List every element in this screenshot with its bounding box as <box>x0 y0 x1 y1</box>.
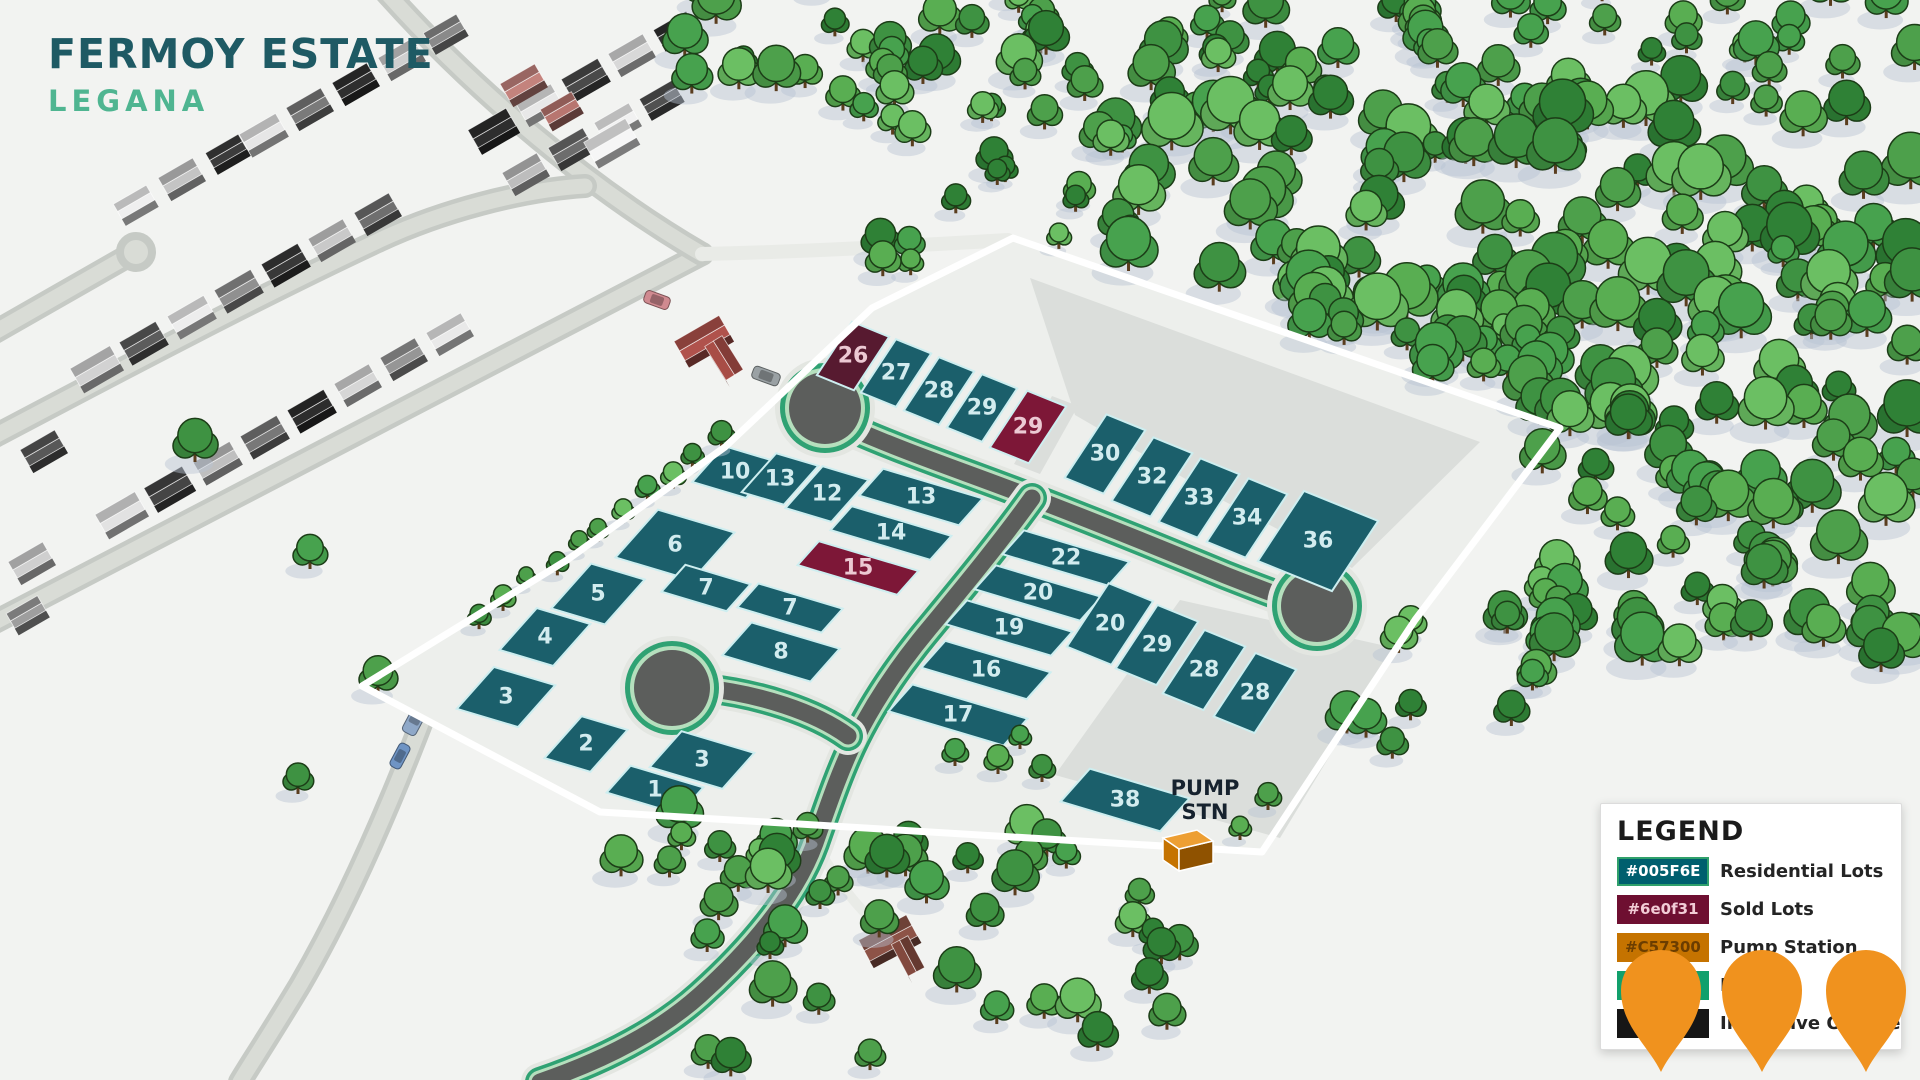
house <box>332 63 380 106</box>
tree <box>737 848 792 905</box>
legend-row-4: Indicative Outline <box>1617 1008 1901 1038</box>
pump-label-line1: PUMP <box>1171 776 1240 800</box>
tree-canopy <box>1621 612 1664 655</box>
lot-number: 17 <box>943 703 974 728</box>
tree-canopy <box>1864 628 1899 663</box>
tree-canopy <box>1049 223 1068 242</box>
tree-canopy <box>1417 345 1448 376</box>
tree-shadow <box>683 947 718 961</box>
lot-number: 22 <box>1051 546 1082 571</box>
legend-row-0: #005F6EResidential Lots <box>1617 856 1901 886</box>
tree-canopy <box>984 991 1009 1016</box>
tree-canopy <box>1422 29 1452 59</box>
tree-canopy <box>1535 613 1573 651</box>
tree <box>1388 690 1426 729</box>
lot-number: 20 <box>1095 612 1126 637</box>
tree-canopy <box>1735 600 1767 632</box>
house <box>380 338 428 381</box>
house <box>705 336 743 388</box>
tree-canopy <box>1495 601 1520 626</box>
tree-canopy <box>1663 624 1696 657</box>
tree-canopy <box>178 418 212 452</box>
lot-number: 13 <box>906 485 937 510</box>
tree-canopy <box>1610 394 1646 430</box>
tree-canopy <box>1031 984 1058 1011</box>
tree-canopy <box>297 534 324 561</box>
tree <box>973 991 1014 1033</box>
tree-shadow <box>799 905 830 918</box>
tree <box>1883 24 1920 82</box>
tree-canopy <box>1506 200 1534 228</box>
tree-shadow <box>945 869 977 882</box>
tree-canopy <box>1518 14 1544 40</box>
tree-canopy <box>1778 24 1801 47</box>
tree-canopy <box>1194 138 1232 176</box>
tree <box>1186 243 1246 306</box>
tree-canopy <box>853 93 874 114</box>
tree-canopy <box>1685 572 1710 597</box>
tree-canopy <box>1313 75 1347 109</box>
tree-shadow <box>1709 99 1744 113</box>
lot-number: 28 <box>1189 658 1220 683</box>
tree-shadow <box>793 0 830 6</box>
tree-canopy <box>760 932 780 952</box>
tree-canopy <box>1060 978 1095 1013</box>
tree-shadow <box>978 181 1005 192</box>
tree-shadow <box>1460 376 1496 391</box>
tree-canopy <box>671 822 692 843</box>
tree-canopy <box>939 947 975 983</box>
tree-shadow <box>843 117 873 129</box>
tree-shadow <box>1369 754 1403 768</box>
vehicle <box>751 365 782 387</box>
tree-canopy <box>1031 95 1058 122</box>
tree-canopy <box>987 745 1009 767</box>
tree <box>793 0 835 6</box>
legend-title: LEGEND <box>1617 816 1901 847</box>
legend-swatch-1: #6e0f31 <box>1617 895 1709 924</box>
tree-canopy <box>1815 299 1846 330</box>
tree-canopy <box>901 249 920 268</box>
tree-canopy <box>1582 448 1609 475</box>
lot-number: 38 <box>1110 788 1141 813</box>
lot-number: 32 <box>1137 465 1168 490</box>
tree-shadow <box>1045 864 1075 876</box>
tree-canopy <box>1153 993 1181 1021</box>
tree-shadow <box>934 209 965 222</box>
culdesac-asphalt <box>634 650 710 726</box>
tree-canopy <box>1029 11 1064 46</box>
site-plan-page: 2627282929303233343610131213141567785432… <box>0 0 1920 1080</box>
tree-canopy <box>1293 299 1327 333</box>
tree-canopy <box>1865 472 1908 515</box>
lot-number: 30 <box>1090 442 1121 467</box>
tree-canopy <box>1148 92 1195 139</box>
tree-canopy <box>1686 334 1718 366</box>
vehicle <box>643 289 672 310</box>
tree-canopy <box>1675 23 1698 46</box>
tree-canopy <box>1032 755 1052 775</box>
house <box>113 185 158 226</box>
tree-shadow <box>1248 806 1277 818</box>
tree-shadow <box>848 1065 881 1078</box>
tree-canopy <box>1771 236 1795 260</box>
house <box>20 430 68 473</box>
tree-canopy <box>827 866 849 888</box>
tree <box>1709 71 1749 113</box>
tree-canopy <box>1641 38 1662 59</box>
tree-canopy <box>1461 180 1504 223</box>
tree <box>1650 526 1689 567</box>
path <box>702 240 1008 254</box>
tree-canopy <box>1540 79 1586 125</box>
tree-canopy <box>658 846 682 870</box>
legend-swatch-0: #005F6E <box>1617 857 1709 886</box>
tree-canopy <box>1654 100 1694 140</box>
lot-number: 19 <box>994 616 1025 641</box>
tree-shadow <box>460 626 485 636</box>
tree-canopy <box>1852 562 1889 599</box>
tree-canopy <box>708 831 732 855</box>
tree <box>276 763 314 803</box>
tree-canopy <box>923 0 956 26</box>
lot-number: 5 <box>590 582 605 607</box>
tree-canopy <box>1469 84 1504 119</box>
tree-canopy <box>898 227 921 250</box>
tree-canopy <box>1600 168 1634 202</box>
tree <box>1687 382 1738 435</box>
tree-canopy <box>1849 291 1886 328</box>
tree-canopy <box>824 8 845 29</box>
tree-canopy <box>1331 311 1357 337</box>
tree-shadow <box>276 789 309 803</box>
tree-canopy <box>910 861 944 895</box>
tree-canopy <box>1785 91 1821 127</box>
lot-number: 29 <box>1142 633 1173 658</box>
lot-number: 14 <box>876 521 907 546</box>
tree-canopy <box>1013 58 1036 81</box>
tree-canopy <box>1610 532 1646 568</box>
tree-canopy <box>1746 544 1781 579</box>
legend-label-3: Roads <box>1720 975 1782 996</box>
house <box>8 542 56 585</box>
tree-canopy <box>605 835 638 868</box>
tree <box>1703 0 1746 24</box>
tree <box>1730 377 1794 444</box>
tree-canopy <box>1892 325 1920 356</box>
house <box>426 313 474 356</box>
tree-canopy <box>758 45 794 81</box>
lot-number: 36 <box>1303 529 1334 554</box>
tree-canopy <box>870 834 904 868</box>
tree-canopy <box>1807 604 1840 637</box>
tree-canopy <box>945 184 967 206</box>
tree-canopy <box>956 843 979 866</box>
tree-canopy <box>1521 659 1544 682</box>
tree-canopy <box>1593 4 1617 28</box>
legend-row-2: #C57300Pump Station <box>1617 932 1901 962</box>
tree-canopy <box>1147 928 1175 956</box>
tree <box>1674 334 1724 386</box>
tree <box>960 92 998 132</box>
lot-number: 20 <box>1023 581 1054 606</box>
legend-swatch-2: #C57300 <box>1617 933 1709 962</box>
lot-number: 13 <box>765 467 796 492</box>
legend-row-3: Roads <box>1617 970 1901 1000</box>
tree-canopy <box>1605 497 1630 522</box>
tree-shadow <box>1022 778 1051 790</box>
tree-canopy <box>1753 478 1793 518</box>
tree <box>1582 4 1621 44</box>
tree-canopy <box>1754 85 1778 109</box>
house <box>286 88 334 131</box>
tree-canopy <box>1133 45 1169 81</box>
tree-canopy <box>711 421 732 442</box>
tree <box>592 835 643 888</box>
lot-number: 27 <box>881 361 912 386</box>
lot-number: 15 <box>843 556 874 581</box>
tree-canopy <box>1071 66 1098 93</box>
tree-canopy <box>1194 5 1220 31</box>
tree-shadow <box>1582 31 1615 45</box>
tree-canopy <box>1455 118 1493 156</box>
legend-label-2: Pump Station <box>1720 937 1858 958</box>
lot-number: 12 <box>812 482 843 507</box>
house <box>334 364 382 407</box>
tree <box>1597 532 1653 590</box>
tree-canopy <box>1720 71 1745 96</box>
tree <box>1831 151 1889 212</box>
tree <box>683 919 724 961</box>
tree-canopy <box>1343 237 1375 269</box>
tree <box>165 418 218 474</box>
tree-canopy <box>1830 45 1856 71</box>
tree-canopy <box>988 159 1007 178</box>
tree-canopy <box>1380 727 1404 751</box>
tree-shadow <box>1743 112 1777 126</box>
tree <box>1857 0 1908 29</box>
legend-panel: LEGEND #005F6EResidential Lots#6e0f31Sol… <box>1600 803 1902 1050</box>
tree-canopy <box>1829 80 1864 115</box>
tree-canopy <box>704 883 733 912</box>
tree-shadow <box>1650 553 1684 567</box>
tree-canopy <box>1119 165 1159 205</box>
tree-shadow <box>935 762 964 774</box>
tree-canopy <box>858 1039 881 1062</box>
tree <box>285 534 328 578</box>
tree-canopy <box>1482 45 1514 77</box>
tree <box>1020 95 1063 139</box>
tree-canopy <box>1097 120 1125 148</box>
tree-shadow <box>973 1019 1009 1034</box>
legend-label-4: Indicative Outline <box>1720 1013 1900 1034</box>
lot-number: 3 <box>498 685 513 710</box>
tree <box>1561 476 1607 524</box>
tree-canopy <box>638 475 657 494</box>
tree-canopy <box>683 443 701 461</box>
tree-canopy <box>1231 816 1248 833</box>
tree-canopy <box>723 48 755 80</box>
tree-canopy <box>869 241 896 268</box>
tree-canopy <box>997 850 1033 886</box>
tree-canopy <box>676 54 707 85</box>
house <box>287 389 337 433</box>
lot-number: 28 <box>1240 681 1271 706</box>
lot-number: 7 <box>782 596 797 621</box>
tree-canopy <box>1136 958 1164 986</box>
lot-number: 7 <box>698 576 713 601</box>
tree-canopy <box>1589 220 1628 259</box>
legend-row-1: #6e0f31Sold Lots <box>1617 894 1901 924</box>
tree-canopy <box>1354 273 1400 319</box>
lot-number: 4 <box>537 625 552 650</box>
tree-canopy <box>1128 878 1150 900</box>
lot-number: 34 <box>1232 506 1263 531</box>
tree-canopy <box>716 1037 746 1067</box>
tree-canopy <box>1322 28 1353 59</box>
tree-canopy <box>1700 382 1733 415</box>
tree-canopy <box>1843 437 1877 471</box>
tree-canopy <box>667 14 702 49</box>
tree-canopy <box>1399 690 1422 713</box>
lot-number: 26 <box>838 344 869 369</box>
tree-canopy <box>1756 52 1782 78</box>
tree-canopy <box>1744 377 1786 419</box>
tree-canopy <box>1533 118 1578 163</box>
tree <box>848 1039 886 1079</box>
lot-number: 33 <box>1184 486 1215 511</box>
tree-canopy <box>1200 243 1239 282</box>
tree-canopy <box>830 76 857 103</box>
tree-canopy <box>970 893 999 922</box>
tree-canopy <box>865 900 894 929</box>
tree <box>959 893 1004 940</box>
lot-number: 6 <box>667 533 682 558</box>
tree <box>1880 325 1920 375</box>
tree <box>945 843 983 882</box>
tree-canopy <box>1011 725 1028 742</box>
tree-canopy <box>1678 144 1723 189</box>
tree-canopy <box>880 71 909 100</box>
lot-number: 10 <box>720 460 751 485</box>
tree-canopy <box>1661 526 1685 550</box>
tree-canopy <box>1681 486 1712 517</box>
legend-label-0: Residential Lots <box>1720 861 1883 882</box>
tree-canopy <box>1273 66 1308 101</box>
tree-canopy <box>1066 185 1086 205</box>
tree <box>647 846 686 886</box>
lot-number: 16 <box>971 658 1002 683</box>
tree <box>814 8 849 44</box>
tree <box>925 947 981 1005</box>
tree-canopy <box>1082 1012 1113 1043</box>
tree-shadow <box>814 32 844 44</box>
tree-canopy <box>945 739 965 759</box>
tree <box>1338 190 1387 241</box>
tree-canopy <box>1596 277 1640 321</box>
tree-canopy <box>1719 282 1764 327</box>
tree-canopy <box>1667 194 1698 225</box>
tree-shadow <box>1484 629 1519 643</box>
tree-canopy <box>908 46 937 75</box>
tree-canopy <box>807 983 831 1007</box>
street-culdesac <box>120 236 152 268</box>
tree-shadow <box>1003 85 1036 98</box>
lot-number: 1 <box>647 778 662 803</box>
lot-number: 3 <box>694 748 709 773</box>
tree-canopy <box>1552 391 1588 427</box>
house <box>608 34 656 77</box>
tree-shadow <box>1222 837 1246 847</box>
lot-number: 28 <box>924 379 955 404</box>
tree-canopy <box>1817 510 1860 553</box>
tree-canopy <box>1258 783 1278 803</box>
tree-canopy <box>959 5 984 30</box>
house <box>240 415 290 459</box>
lot-number: 29 <box>967 396 998 421</box>
tree-canopy <box>1739 21 1774 56</box>
tree-shadow <box>1056 208 1084 219</box>
street <box>0 186 585 436</box>
tree-canopy <box>1573 476 1602 505</box>
tree <box>796 983 835 1024</box>
tree-canopy <box>899 111 926 138</box>
tree-shadow <box>977 770 1008 783</box>
house <box>158 158 206 201</box>
tree-canopy <box>971 92 994 115</box>
pump-label-line2: STN <box>1181 800 1228 824</box>
tree-canopy <box>1498 690 1525 717</box>
tree-shadow <box>796 1010 830 1024</box>
tree <box>1486 690 1530 736</box>
legend-swatch-3 <box>1617 971 1709 1000</box>
tree-canopy <box>755 961 791 997</box>
tree <box>1631 38 1666 74</box>
lot-number: 8 <box>773 640 788 665</box>
tree-shadow <box>647 873 680 887</box>
house <box>95 492 149 540</box>
lot-number: 29 <box>1013 415 1044 440</box>
tree-canopy <box>809 880 831 902</box>
lot-number: 2 <box>578 732 593 757</box>
tree-canopy <box>1845 151 1883 189</box>
tree-canopy <box>695 919 720 944</box>
tree-canopy <box>750 848 785 883</box>
legend-swatch-4 <box>1617 1009 1709 1038</box>
tree-canopy <box>1276 116 1307 147</box>
street-center <box>0 256 128 332</box>
tree-canopy <box>286 763 309 786</box>
legend-label-1: Sold Lots <box>1720 899 1814 920</box>
tree-canopy <box>1365 148 1394 177</box>
tree-canopy <box>1205 38 1231 64</box>
tree <box>934 184 970 222</box>
tree-canopy <box>1471 348 1496 373</box>
tree-canopy <box>1230 179 1270 219</box>
tree-shadow <box>960 118 993 132</box>
tree-canopy <box>1350 190 1381 221</box>
tree-canopy <box>1826 371 1851 396</box>
tree-canopy <box>1107 216 1151 260</box>
